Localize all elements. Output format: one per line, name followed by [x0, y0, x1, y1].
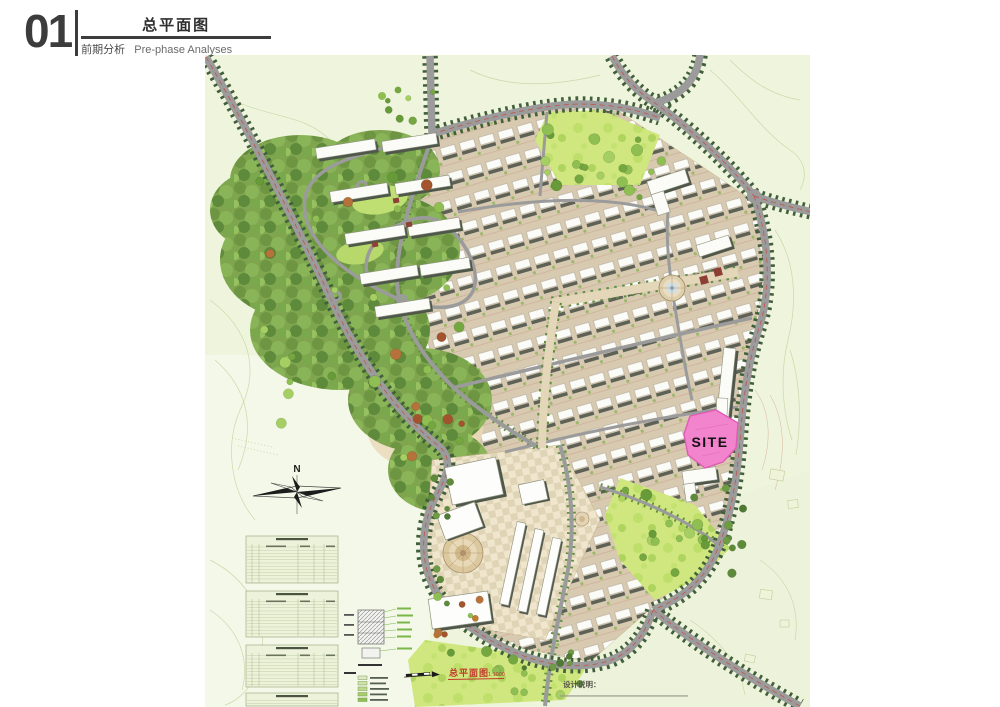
plan-caption: 总平面图 [449, 667, 489, 678]
design-notes-title: 设计说明： [563, 679, 601, 689]
master-plan-map: SITE N [0, 0, 1000, 707]
header-divider [75, 10, 78, 56]
indicator-table-block [246, 645, 338, 687]
compass-label: N [293, 464, 300, 475]
indicator-table-block [246, 536, 338, 583]
site-label: SITE [691, 434, 728, 450]
plan-scale: 1:1000 [488, 672, 505, 678]
page-subtitle: 前期分析 Pre-phase Analyses [81, 41, 271, 57]
page-header: 01 总平面图 前期分析 Pre-phase Analyses [24, 8, 271, 57]
indicator-table-block [246, 591, 338, 637]
indicator-tables [246, 536, 338, 706]
page-title: 总平面图 [81, 14, 271, 35]
subtitle-en: Pre-phase Analyses [134, 44, 232, 56]
title-rule [81, 36, 271, 39]
subtitle-cn: 前期分析 [81, 44, 125, 56]
design-notes-line [560, 695, 688, 697]
section-number: 01 [24, 8, 71, 57]
roundabout-plaza [659, 275, 685, 301]
indicator-table-block [246, 693, 338, 706]
presentation-page: 01 总平面图 前期分析 Pre-phase Analyses [0, 0, 1000, 707]
